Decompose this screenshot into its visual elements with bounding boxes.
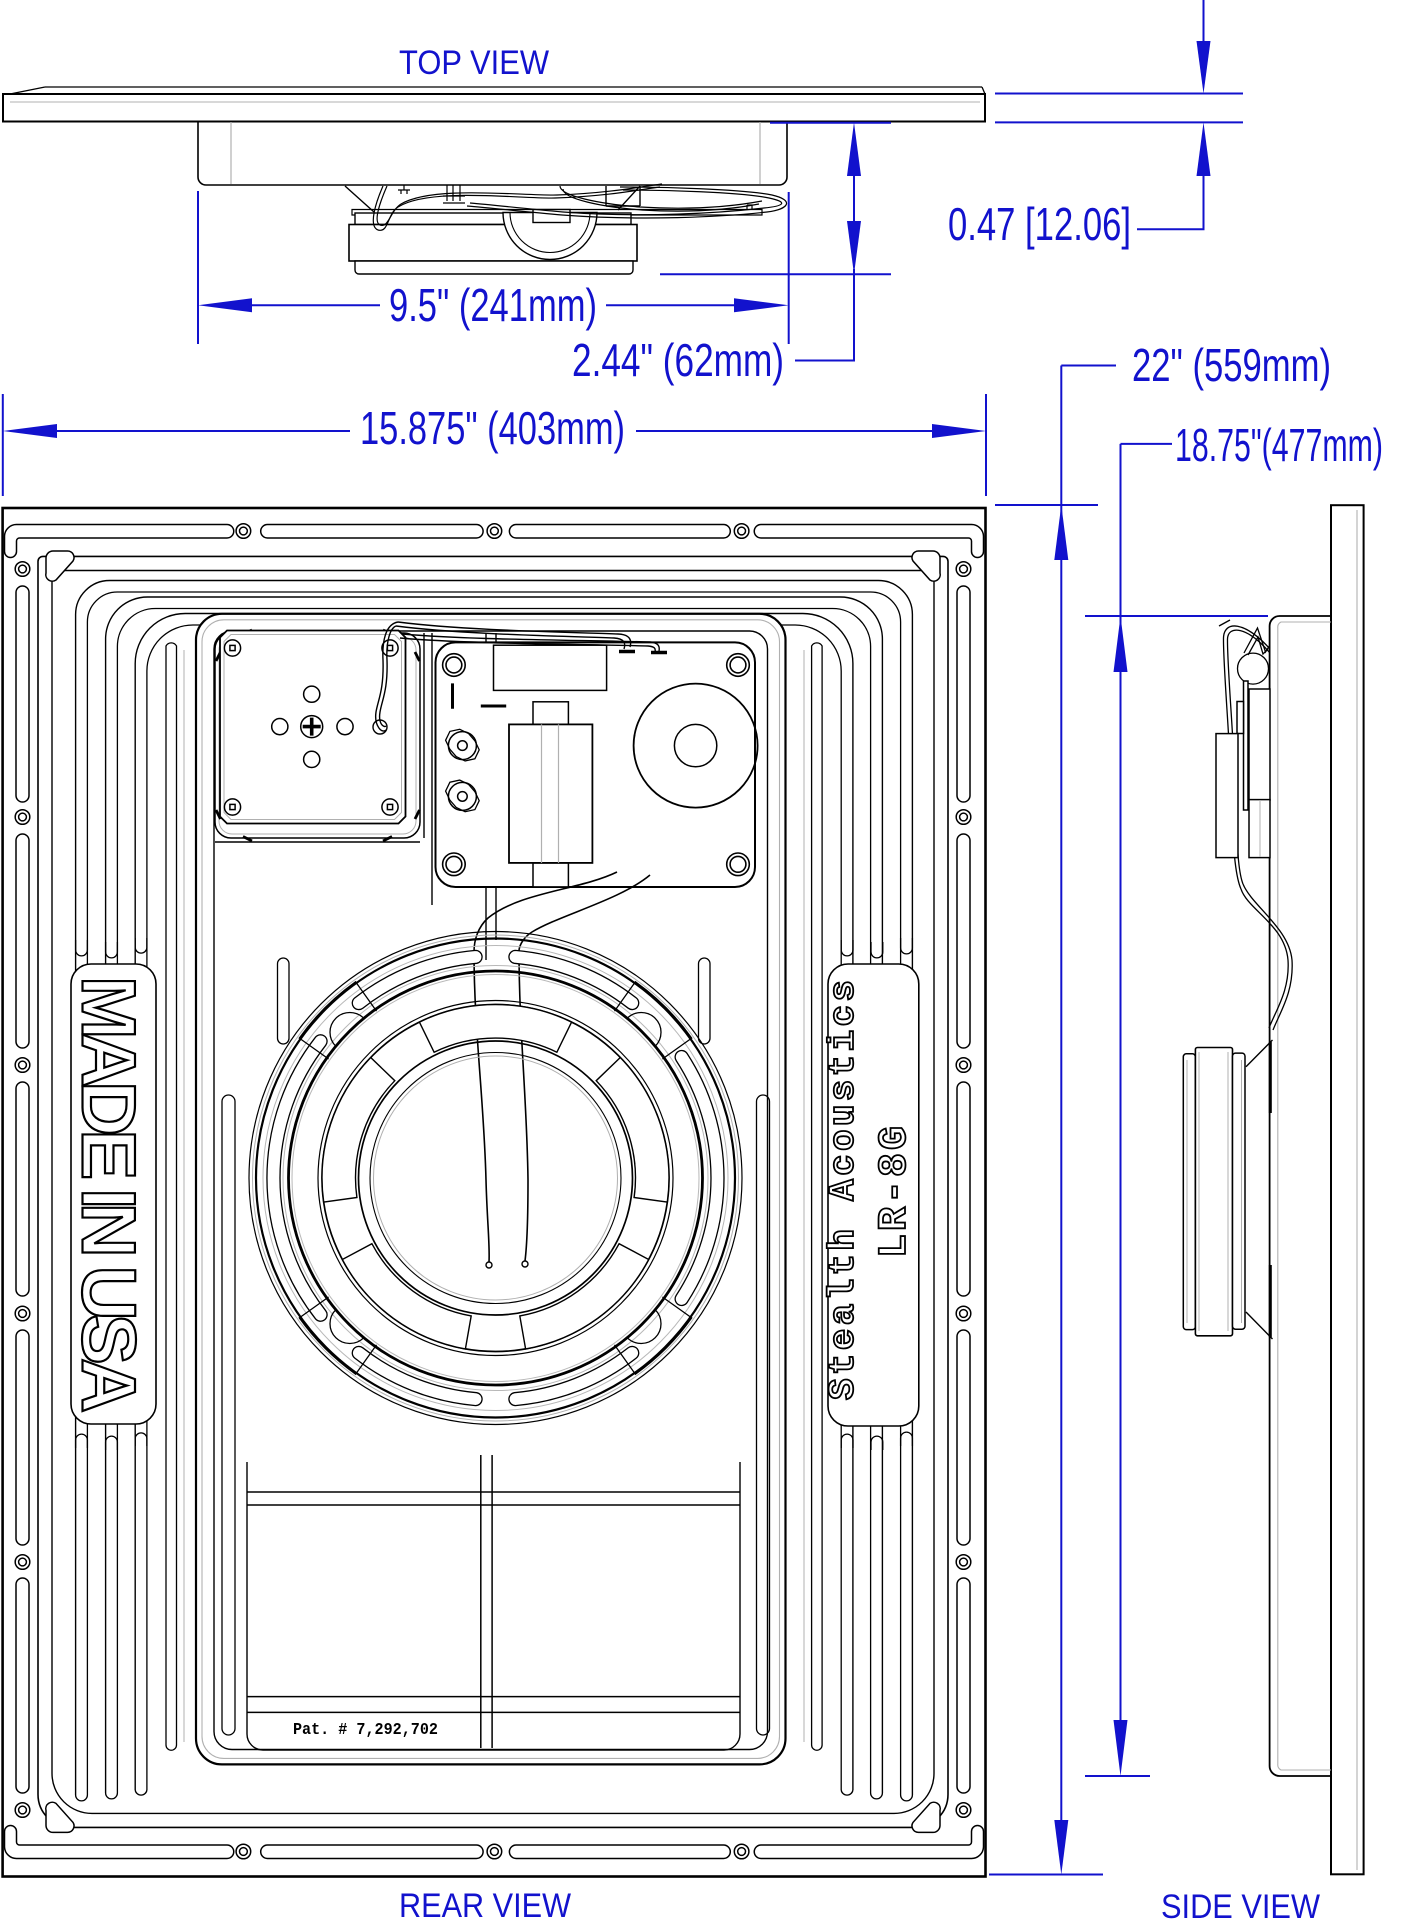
svg-text:Pat. # 7,292,702: Pat. # 7,292,702 xyxy=(293,1721,438,1740)
svg-text:REAR VIEW: REAR VIEW xyxy=(399,1887,571,1920)
svg-text:LR-8G: LR-8G xyxy=(873,1126,918,1258)
svg-text:9.5" (241mm): 9.5" (241mm) xyxy=(389,279,597,331)
svg-text:0.47 [12.06]: 0.47 [12.06] xyxy=(948,198,1131,250)
svg-text:15.875" (403mm): 15.875" (403mm) xyxy=(360,402,625,454)
svg-text:TOP VIEW: TOP VIEW xyxy=(399,44,549,82)
svg-text:Stealth Acoustics: Stealth Acoustics xyxy=(823,980,864,1400)
svg-text:SIDE VIEW: SIDE VIEW xyxy=(1161,1888,1320,1920)
svg-text:MADE IN USA: MADE IN USA xyxy=(66,976,151,1413)
svg-text:2.44" (62mm): 2.44" (62mm) xyxy=(572,334,784,386)
svg-text:18.75"(477mm): 18.75"(477mm) xyxy=(1175,419,1383,471)
svg-text:22" (559mm): 22" (559mm) xyxy=(1132,339,1331,391)
